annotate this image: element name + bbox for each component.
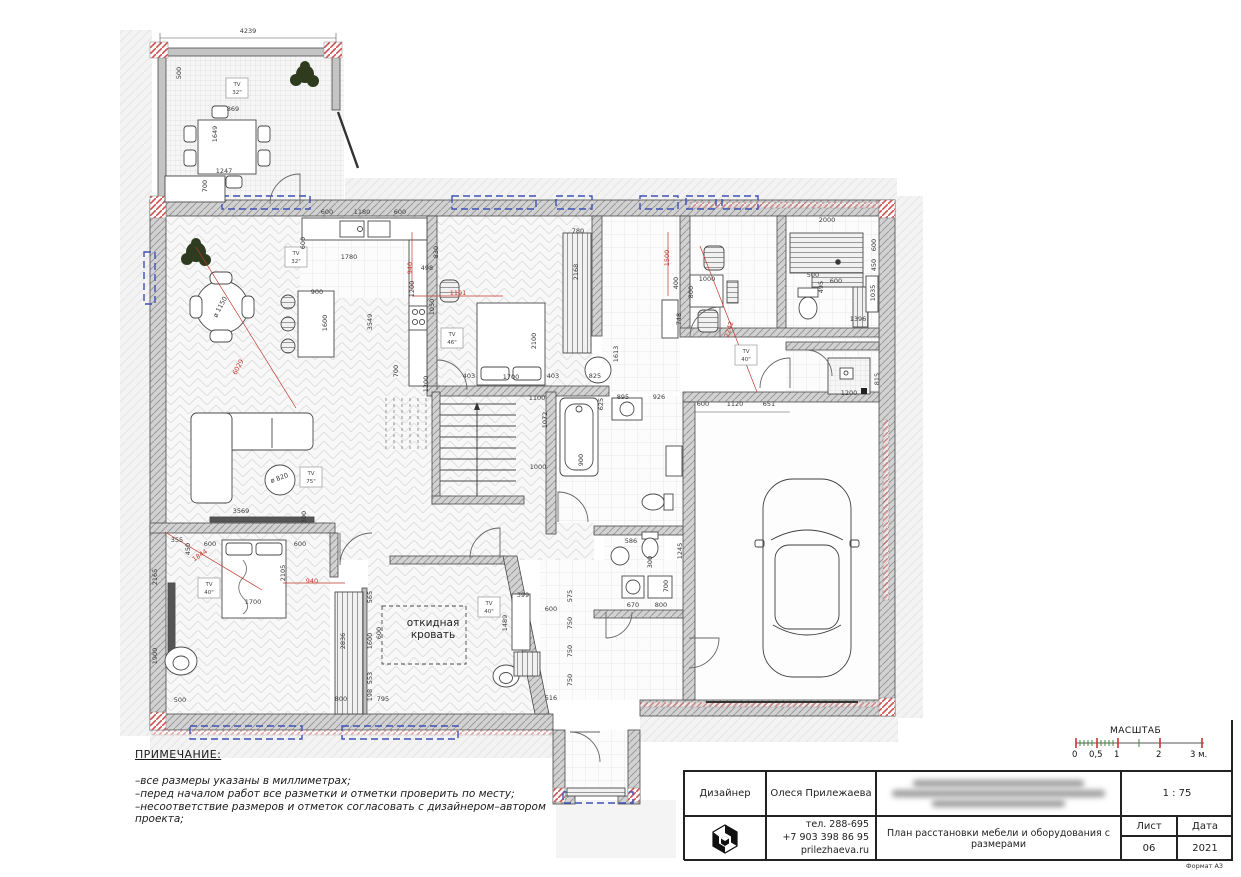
svg-text:TV: TV <box>291 251 299 257</box>
svg-text:TV: TV <box>447 332 455 338</box>
dimension-label: 3569 <box>233 507 250 515</box>
tv-75-unit <box>210 517 314 522</box>
svg-text:46": 46" <box>447 340 457 346</box>
phone-2: +7 903 398 86 95 <box>782 832 869 845</box>
dimension-label: 750 <box>566 674 574 686</box>
svg-text:TV: TV <box>204 582 212 588</box>
scale-bar-ruler <box>1072 737 1212 749</box>
dimension-label: 750 <box>566 645 574 657</box>
dimension-label: 400 <box>672 277 680 289</box>
logo-cell <box>684 816 766 861</box>
dimension-label: 600 <box>830 277 842 285</box>
dimension-label: 565 <box>366 591 374 603</box>
foldroom-closet <box>514 652 540 676</box>
date-value-cell: 2021 <box>1177 836 1233 861</box>
svg-text:TV: TV <box>306 471 314 477</box>
dimension-label: 1600 <box>321 315 329 332</box>
dimension-label: 600 <box>375 627 383 639</box>
dimension-label: 516 <box>545 694 557 702</box>
notes-block: ПРИМЕЧАНИЕ: –все размеры указаны в милли… <box>135 748 575 826</box>
bathroom-vanity <box>612 398 642 420</box>
svg-text:32": 32" <box>291 259 301 265</box>
sauna-toilet <box>798 288 818 319</box>
armchair <box>165 647 197 675</box>
dimension-label: 800 <box>655 601 667 609</box>
dimension-label: 900 <box>311 288 323 296</box>
tv-label: TV40" <box>478 597 500 617</box>
dimension-label: 403 <box>463 372 475 380</box>
dimension-label: 1500 <box>663 250 671 267</box>
dimension-label: 600 <box>870 239 878 251</box>
wc-toilet <box>642 532 658 558</box>
dimension-label: 1649 <box>211 126 219 143</box>
dimension-label: 500 <box>807 271 819 279</box>
dimension-label: 1245 <box>676 543 684 560</box>
website: prilezhaeva.ru <box>801 845 869 858</box>
dimension-label: 586 <box>625 537 637 545</box>
dimension-label: 1000 <box>530 463 547 471</box>
scale-value-cell: 1 : 75 <box>1121 771 1233 816</box>
dimension-label: 600 <box>294 540 306 548</box>
dimension-label: 1247 <box>216 167 233 175</box>
dimension-label: 300 <box>646 556 654 568</box>
dimension-label: 403 <box>547 372 559 380</box>
dimension-label: 495 <box>817 281 825 293</box>
dimension-label: 2165 <box>151 569 159 586</box>
dimension-label: 1700 <box>245 598 262 606</box>
dimension-label: 750 <box>566 617 574 629</box>
dimension-label: 2105 <box>279 565 287 582</box>
dimension-label: 500 <box>175 67 183 79</box>
dimension-label: 869 <box>227 105 239 113</box>
dimension-label: 1035 <box>869 285 877 302</box>
foldroom-cabinet <box>512 594 530 650</box>
dimension-label: 1191 <box>450 289 467 297</box>
dimension-label: 700 <box>201 180 209 192</box>
dimension-label: 748 <box>675 313 683 325</box>
dimension-label: 700 <box>392 365 400 377</box>
project-address-cell-blurred <box>876 771 1121 816</box>
dimension-label: 1120 <box>727 400 744 408</box>
bed-bedroom2 <box>222 540 286 618</box>
dimension-label: 600 <box>545 605 557 613</box>
phone-1: тел. 288-695 <box>806 819 869 832</box>
note-line: –несоответствие размеров и отметок согла… <box>135 801 575 825</box>
sheet-frame-line <box>1231 720 1233 772</box>
dimension-label: 1780 <box>341 253 358 261</box>
dimension-label: 700 <box>662 580 670 592</box>
dimension-label: 940 <box>306 577 318 585</box>
dimension-label: 2836 <box>339 633 347 650</box>
designer-logo-icon <box>705 819 745 859</box>
tv-label: TV40" <box>198 578 220 598</box>
dimension-label: 670 <box>627 601 639 609</box>
note-line: –все размеры указаны в миллиметрах; <box>135 775 575 787</box>
dimension-label: 600 <box>394 208 406 216</box>
dimension-label: 825 <box>589 372 601 380</box>
terrace-cabinet <box>165 176 225 202</box>
tv-label: TV75" <box>300 467 322 487</box>
notes-lines: –все размеры указаны в миллиметрах;–пере… <box>135 775 575 825</box>
dimension-label: 1180 <box>354 208 371 216</box>
scale-bar: МАСШТАБ 00,5123 м. <box>1072 726 1222 766</box>
tv-label: TV32" <box>226 78 248 98</box>
notes-title: ПРИМЕЧАНИЕ: <box>135 748 575 761</box>
dimension-label: 450 <box>870 259 878 271</box>
dimension-label: 1396 <box>850 315 867 323</box>
dimension-label: 651 <box>763 400 775 408</box>
wc-basin <box>611 547 629 565</box>
dimension-label: 1100 <box>529 394 546 402</box>
dimension-label: 2000 <box>819 216 836 224</box>
dimension-label: 450 <box>184 543 192 555</box>
svg-text:32": 32" <box>232 90 242 96</box>
dimension-label: 4239 <box>240 27 257 35</box>
contact-cell: тел. 288-695 +7 903 398 86 95 prilezhaev… <box>766 816 876 861</box>
format-label: Формат А3 <box>1186 862 1223 870</box>
designer-label-cell: Дизайнер <box>684 771 766 816</box>
sheet-value-cell: 06 <box>1121 836 1177 861</box>
dimension-label: 815 <box>873 373 881 385</box>
dimension-label: 198 <box>366 689 374 701</box>
svg-text:TV: TV <box>232 82 240 88</box>
dimension-label: 1000 <box>699 275 716 283</box>
scale-tick-label: 3 м. <box>1190 750 1207 760</box>
washing-machine <box>622 576 644 598</box>
dimension-label: 3549 <box>366 314 374 331</box>
dimension-label: 795 <box>377 695 389 703</box>
dimension-label: 1600 <box>366 633 374 650</box>
scale-bar-labels: 00,5123 м. <box>1072 750 1222 762</box>
svg-text:TV: TV <box>484 601 492 607</box>
dimension-label: 1200 <box>408 281 416 298</box>
scale-tick-label: 2 <box>1156 750 1161 760</box>
dimension-label: 800 <box>687 286 695 298</box>
dimension-label: 575 <box>566 590 574 602</box>
dimension-label: 625 <box>597 398 605 410</box>
dimension-label: 2168 <box>572 264 580 281</box>
svg-text:40": 40" <box>204 590 214 596</box>
svg-text:TV: TV <box>741 349 749 355</box>
dimension-label: 900 <box>577 454 585 466</box>
dimension-label: 1072 <box>541 412 549 429</box>
dimension-label: 1200 <box>841 389 858 397</box>
svg-text:40": 40" <box>741 357 751 363</box>
entry-step <box>567 788 625 796</box>
dimension-label: 1200 <box>422 376 430 393</box>
svg-text:75": 75" <box>306 479 316 485</box>
scale-tick-label: 1 <box>1114 750 1119 760</box>
tv-label: TV40" <box>735 345 757 365</box>
note-line: –перед началом работ все разметки и отме… <box>135 788 575 800</box>
scale-tick-label: 0 <box>1072 750 1077 760</box>
floor-plan-canvas: TV32"TV32"TV46"TV40"TV40"TV40"TV75" 4239… <box>0 0 1241 877</box>
svg-text:40": 40" <box>484 609 494 615</box>
date-label-cell: Дата <box>1177 816 1233 836</box>
designer-name-cell: Олеся Прилежаева <box>766 771 876 816</box>
sheet-label-cell: Лист <box>1121 816 1177 836</box>
dimension-label: 500 <box>174 696 186 704</box>
title-block: Дизайнер Олеся Прилежаева 1 : 75 тел. 28… <box>683 770 1232 860</box>
foldbed-room-label: откидная кровать <box>383 617 483 641</box>
bathroom-cabinet <box>666 446 682 476</box>
drawing-title-cell: План расстановки мебели и оборудования с… <box>876 816 1121 861</box>
dimension-label: 553 <box>366 672 374 684</box>
wardrobe-bedroom1 <box>563 233 591 353</box>
dimension-label: 1700 <box>503 373 520 381</box>
dimension-label: 600 <box>697 400 709 408</box>
dimension-label: 600 <box>321 208 333 216</box>
scale-bar-title: МАСШТАБ <box>1110 726 1161 736</box>
bathroom-toilet <box>642 494 673 510</box>
dimension-label: 1489 <box>501 615 509 632</box>
dimension-label: 940 <box>406 262 414 274</box>
dimension-label: 2100 <box>530 333 538 350</box>
dimension-label: 300 <box>300 511 308 523</box>
dimension-label: 498 <box>421 264 433 272</box>
dimension-label: 1050 <box>428 299 436 316</box>
drawing-sheet: TV32"TV32"TV46"TV40"TV40"TV40"TV75" 4239… <box>0 0 1241 877</box>
dimension-label: 830 <box>432 246 440 258</box>
scale-tick-label: 0,5 <box>1089 750 1103 760</box>
dimension-label: 780 <box>572 227 584 235</box>
dimension-label: 600 <box>204 540 216 548</box>
dimension-label: 926 <box>653 393 665 401</box>
dimension-label: 800 <box>335 695 347 703</box>
dimension-label: 355 <box>171 536 183 544</box>
dimension-label: 600 <box>299 237 307 249</box>
dimension-label: 399 <box>517 591 529 599</box>
tv-label: TV46" <box>441 328 463 348</box>
dimension-label: 895 <box>617 393 629 401</box>
dimension-label: 1613 <box>612 346 620 363</box>
dimension-label: 1900 <box>151 648 159 665</box>
